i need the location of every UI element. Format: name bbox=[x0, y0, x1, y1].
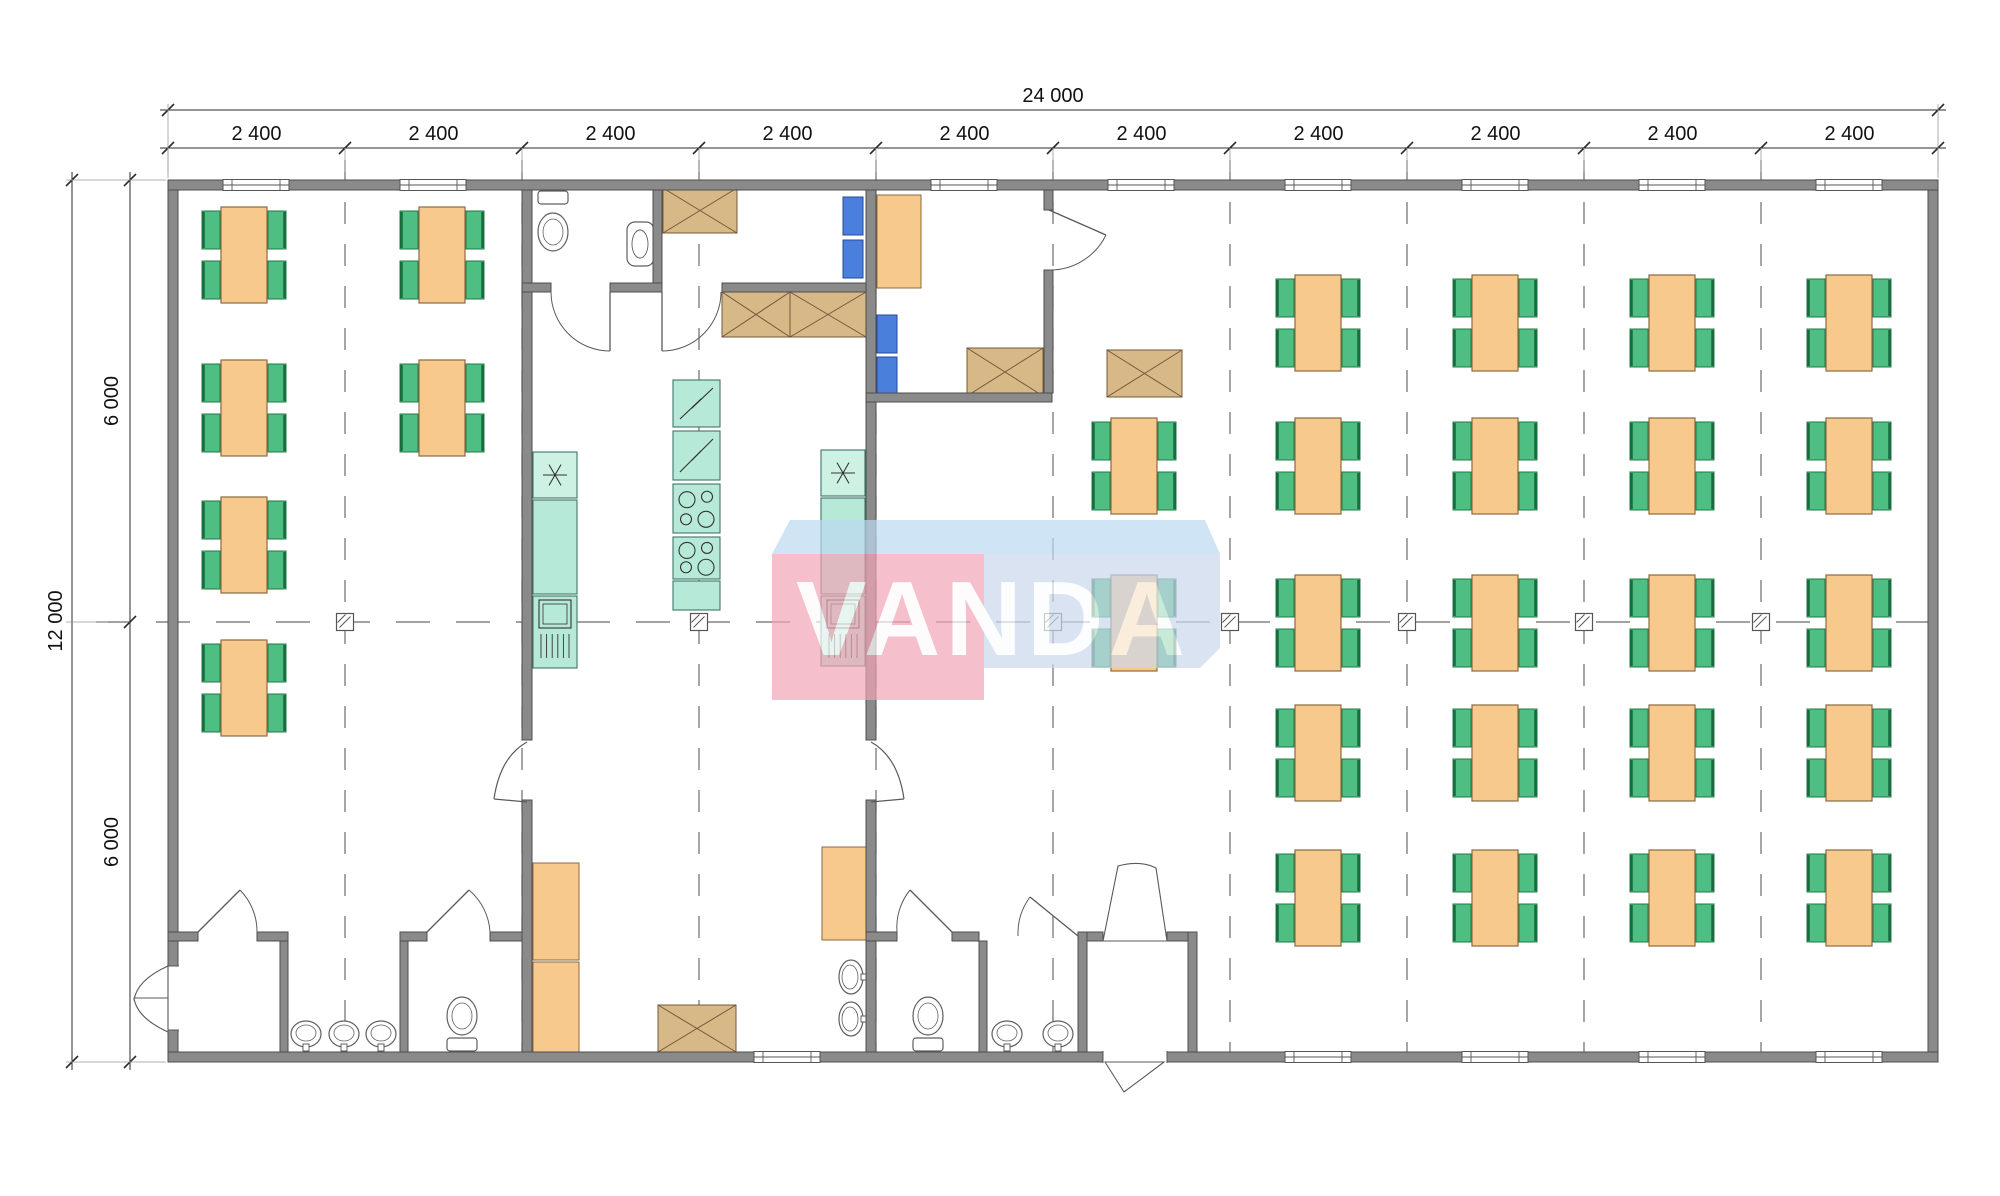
basin-tap bbox=[341, 1044, 347, 1051]
wall bbox=[490, 932, 522, 941]
table bbox=[1472, 850, 1518, 946]
door-leaf-panel bbox=[134, 998, 168, 1032]
wall bbox=[400, 941, 408, 1052]
window bbox=[1285, 1052, 1351, 1063]
wall bbox=[653, 190, 662, 292]
table bbox=[221, 640, 267, 736]
basin-rim bbox=[627, 222, 654, 266]
wall bbox=[722, 283, 866, 292]
table bbox=[1826, 705, 1872, 801]
dimension-label: 6 000 bbox=[101, 817, 123, 867]
table bbox=[1826, 275, 1872, 371]
appliance-segment bbox=[673, 581, 720, 610]
table bbox=[221, 360, 267, 456]
basin-tap bbox=[1004, 1044, 1010, 1051]
dimension-label: 24 000 bbox=[1022, 85, 1083, 107]
kitchen-cabinet bbox=[822, 847, 866, 940]
counter-unit bbox=[658, 1005, 736, 1052]
washbasin bbox=[627, 222, 654, 266]
dimension-label: 2 400 bbox=[1824, 123, 1874, 145]
wall bbox=[257, 932, 288, 941]
watermark-text: VANDA bbox=[796, 560, 1190, 678]
table bbox=[1826, 850, 1872, 946]
wall bbox=[522, 190, 532, 740]
wall bbox=[979, 941, 987, 1052]
counter-unit bbox=[1107, 350, 1182, 397]
wall bbox=[1044, 190, 1053, 210]
table bbox=[221, 497, 267, 593]
window bbox=[400, 180, 466, 191]
floor-plan-page: 24 0002 4002 4002 4002 4002 4002 4002 40… bbox=[0, 0, 2000, 1196]
dimension-label: 2 400 bbox=[1470, 123, 1520, 145]
blue-chair bbox=[877, 315, 897, 353]
window bbox=[1285, 180, 1351, 191]
kitchen-cabinet bbox=[533, 962, 579, 1052]
counter-unit bbox=[663, 188, 737, 233]
window bbox=[1639, 1052, 1705, 1063]
kitchen-unit-left bbox=[533, 452, 577, 668]
counter-unit bbox=[790, 292, 866, 337]
dimension-label: 2 400 bbox=[1647, 123, 1697, 145]
window bbox=[1816, 1052, 1882, 1063]
door-leaf-panel bbox=[1105, 1062, 1164, 1092]
wall bbox=[168, 932, 198, 941]
table bbox=[1295, 275, 1341, 371]
table bbox=[1826, 575, 1872, 671]
appliance-segment bbox=[533, 500, 577, 594]
dimension-label: 2 400 bbox=[585, 123, 635, 145]
table bbox=[1649, 705, 1695, 801]
table bbox=[221, 207, 267, 303]
counter-unit bbox=[722, 292, 790, 337]
table bbox=[1472, 575, 1518, 671]
table bbox=[1111, 418, 1157, 514]
blue-chair bbox=[877, 357, 897, 395]
wall bbox=[952, 932, 979, 941]
wall bbox=[1078, 932, 1087, 1052]
counter-unit bbox=[967, 348, 1043, 396]
wall bbox=[1087, 932, 1103, 941]
opening-gap bbox=[167, 966, 179, 1030]
window bbox=[1816, 180, 1882, 191]
table bbox=[419, 207, 465, 303]
wall bbox=[168, 190, 178, 1052]
window bbox=[931, 180, 997, 191]
toilet bbox=[538, 191, 568, 251]
toilet-tank bbox=[538, 191, 568, 204]
wall bbox=[400, 932, 427, 941]
wall bbox=[866, 393, 1052, 402]
blue-chair bbox=[843, 240, 863, 278]
dimension-label: 2 400 bbox=[939, 123, 989, 145]
door-leaf-panel bbox=[134, 966, 168, 1000]
table bbox=[1649, 418, 1695, 514]
basin-tap bbox=[1055, 1044, 1061, 1051]
wall bbox=[1188, 932, 1197, 1052]
window bbox=[1462, 1052, 1528, 1063]
kitchen-island bbox=[673, 380, 720, 610]
floor-plan-drawing: 24 0002 4002 4002 4002 4002 4002 4002 40… bbox=[0, 0, 2000, 1196]
table bbox=[1472, 705, 1518, 801]
appliance-segment bbox=[673, 537, 720, 579]
window bbox=[1462, 180, 1528, 191]
basin-tap bbox=[378, 1044, 384, 1051]
opening-gap bbox=[1103, 1051, 1167, 1063]
table bbox=[1649, 575, 1695, 671]
wall bbox=[1044, 270, 1053, 393]
table bbox=[1649, 275, 1695, 371]
table bbox=[1295, 705, 1341, 801]
table bbox=[1472, 418, 1518, 514]
window bbox=[223, 180, 289, 191]
dimension-label: 6 000 bbox=[101, 376, 123, 426]
wall bbox=[610, 283, 662, 292]
wall bbox=[866, 800, 876, 1052]
table bbox=[1295, 575, 1341, 671]
wall bbox=[1928, 190, 1938, 1052]
table bbox=[1295, 850, 1341, 946]
wall bbox=[280, 941, 288, 1052]
table bbox=[1826, 418, 1872, 514]
toilet bbox=[447, 997, 477, 1051]
wall bbox=[522, 283, 551, 292]
door-opening bbox=[167, 966, 179, 1030]
appliance-segment bbox=[673, 484, 720, 533]
dimension-label: 2 400 bbox=[762, 123, 812, 145]
window bbox=[754, 1052, 820, 1063]
window bbox=[1108, 180, 1174, 191]
door-opening bbox=[1103, 1051, 1167, 1063]
appliance-segment bbox=[533, 596, 577, 668]
dimension-label: 12 000 bbox=[45, 590, 67, 651]
toilet bbox=[913, 997, 943, 1051]
toilet-tank bbox=[447, 1038, 477, 1051]
dimension-label: 2 400 bbox=[408, 123, 458, 145]
table bbox=[1649, 850, 1695, 946]
blue-chair bbox=[843, 197, 863, 235]
kitchen-cabinet bbox=[533, 863, 579, 960]
watermark-top-face bbox=[772, 520, 1220, 554]
table bbox=[1295, 418, 1341, 514]
dimension-label: 2 400 bbox=[1116, 123, 1166, 145]
window bbox=[1639, 180, 1705, 191]
dimension-label: 2 400 bbox=[231, 123, 281, 145]
dimension-label: 2 400 bbox=[1293, 123, 1343, 145]
basin-tap bbox=[303, 1044, 309, 1051]
toilet-tank bbox=[913, 1038, 943, 1051]
wall bbox=[522, 800, 532, 1052]
wall bbox=[866, 932, 897, 941]
table bbox=[419, 360, 465, 456]
watermark: VANDA bbox=[772, 520, 1220, 700]
table bbox=[1472, 275, 1518, 371]
office-desk bbox=[877, 195, 921, 288]
